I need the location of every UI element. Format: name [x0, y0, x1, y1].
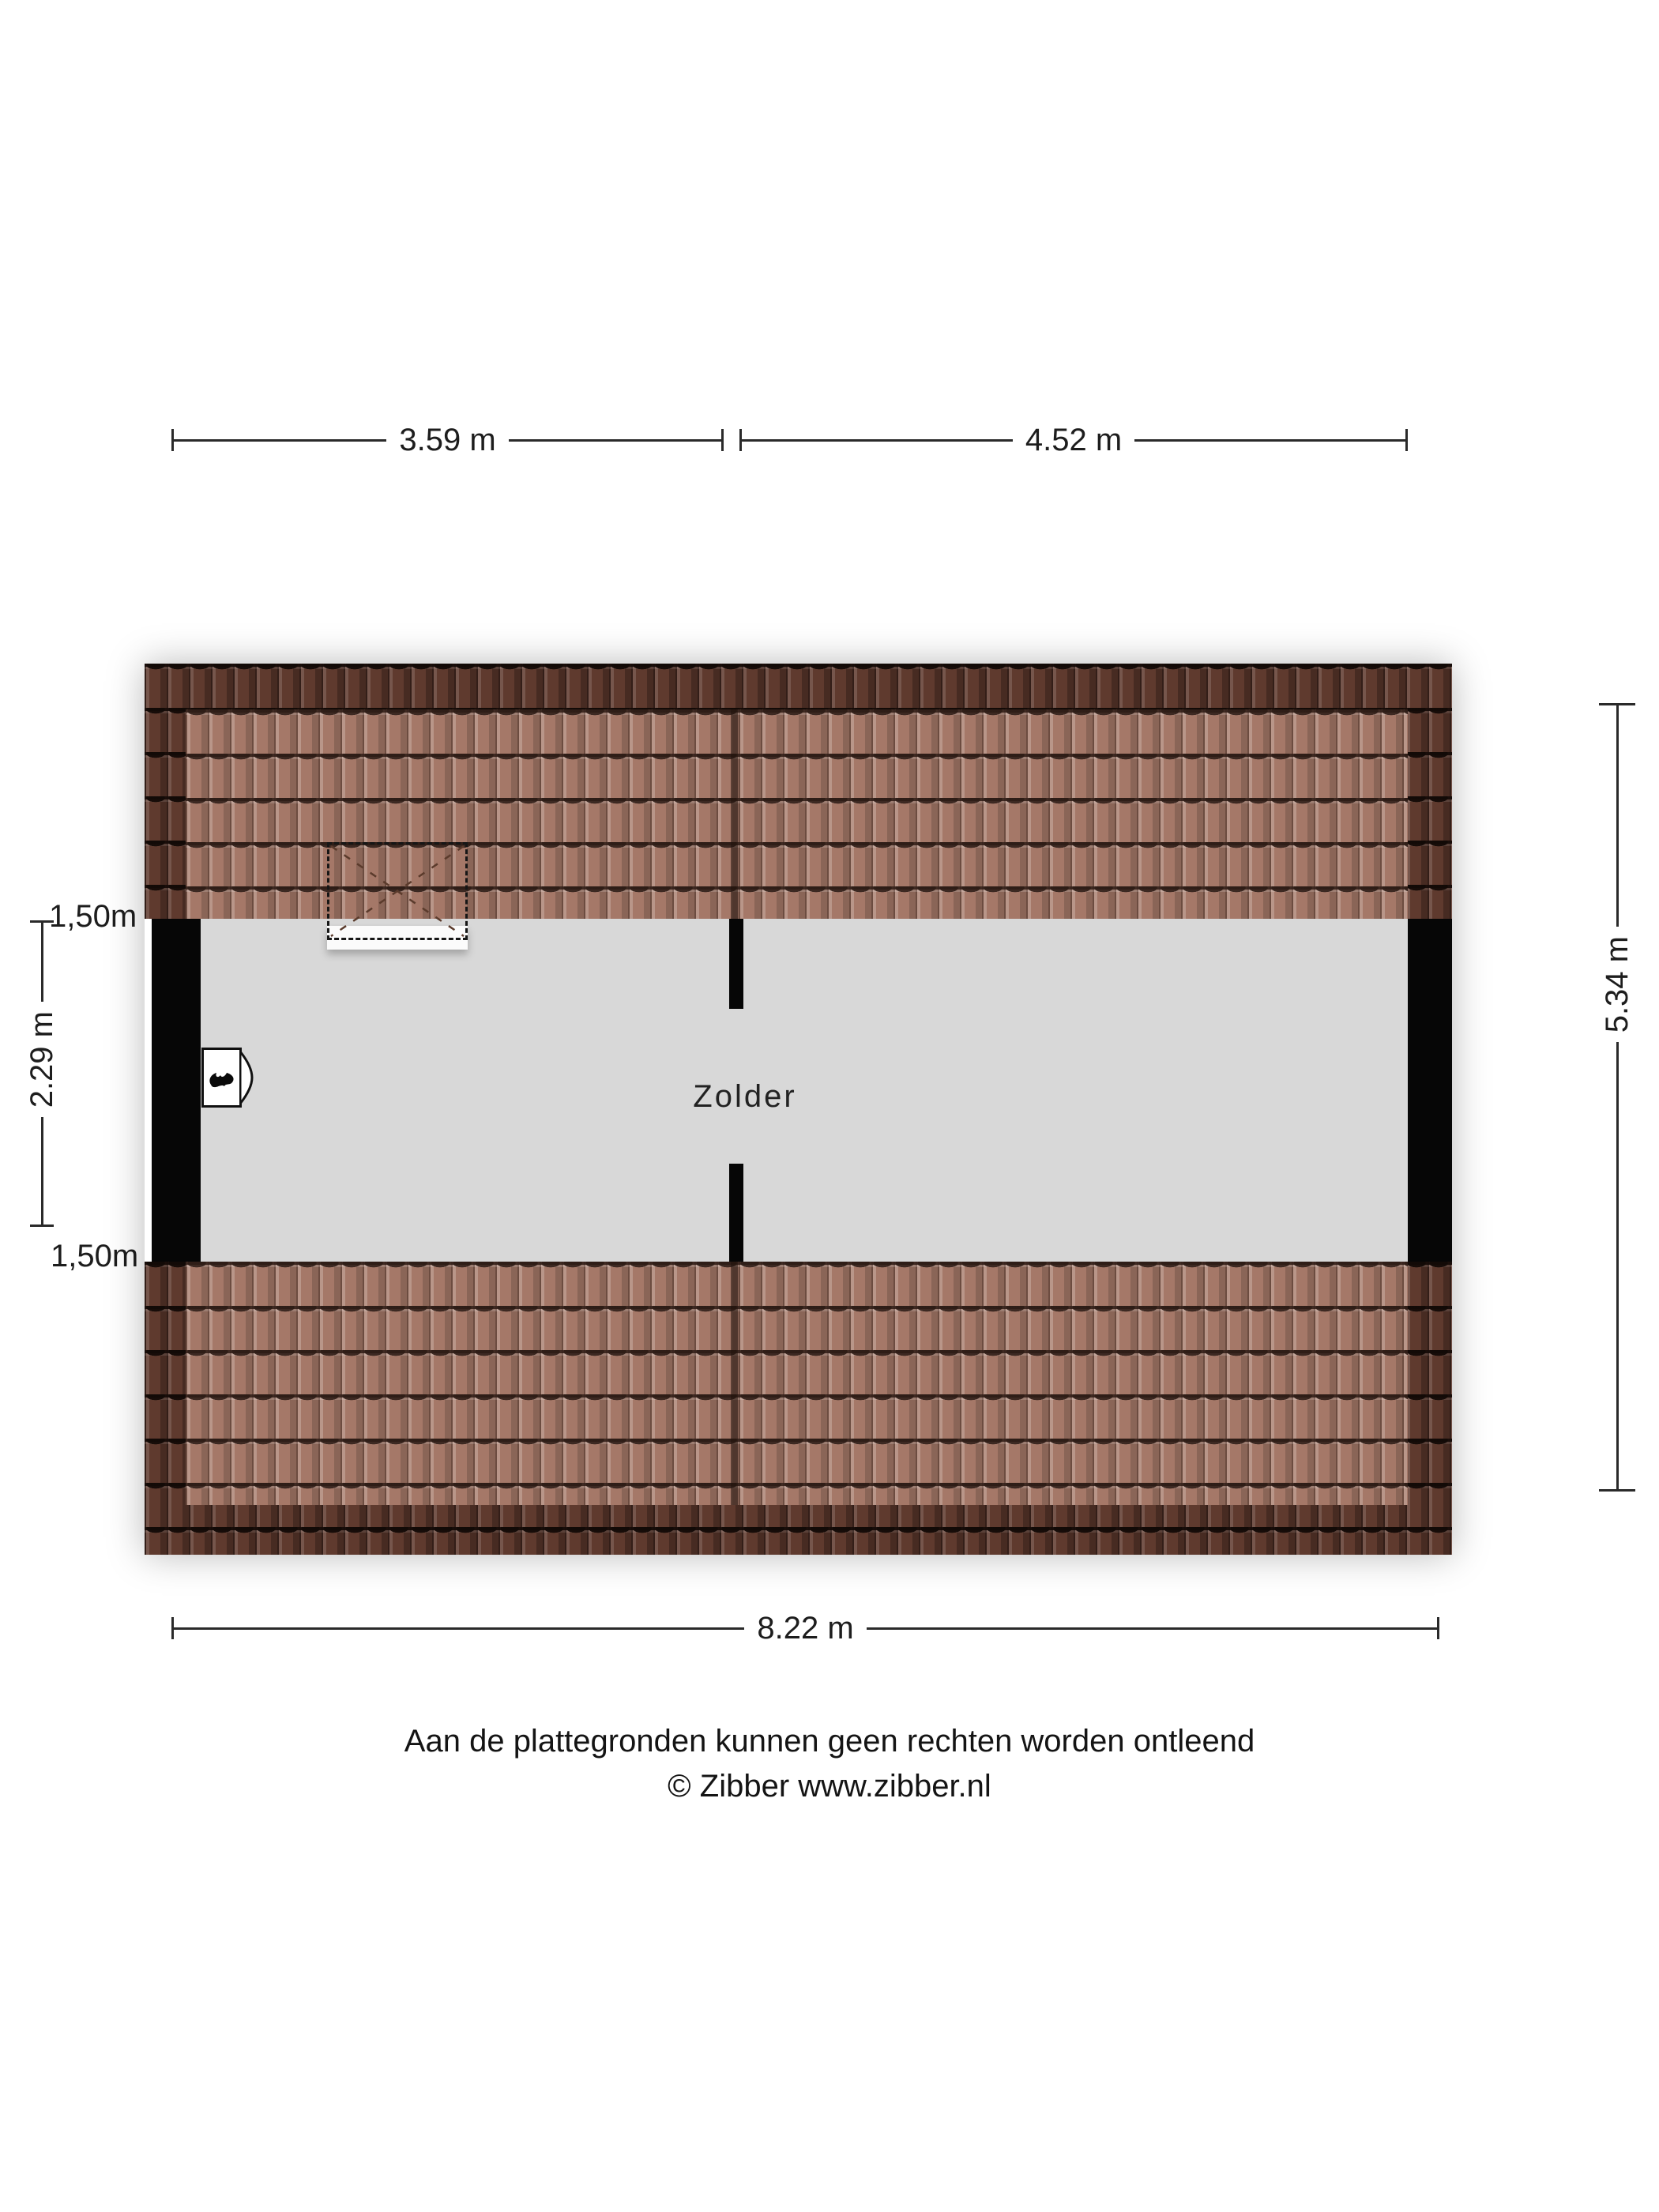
dimension-label: 8.22 m — [744, 1611, 866, 1646]
party-wall-seam-bottom — [731, 1262, 738, 1505]
dimension-tick — [721, 429, 724, 451]
left-bottom-height-label: 1,50m — [51, 1239, 138, 1274]
wall-right — [1408, 919, 1452, 1262]
dimension-tick — [30, 1224, 54, 1227]
room-label: Zolder — [646, 1079, 844, 1115]
dimension-label: 2.29 m — [24, 1002, 60, 1117]
boiler-unit — [201, 1048, 242, 1108]
dimension-tick — [1599, 1489, 1635, 1492]
dimension-label: 4.52 m — [1013, 423, 1134, 458]
dimension-top-left: 3.59 m — [171, 422, 724, 458]
disclaimer-text: Aan de plattegronden kunnen geen rechten… — [0, 1719, 1659, 1764]
wall-stub-bottom — [729, 1164, 743, 1262]
party-wall-seam-top — [731, 709, 738, 919]
boiler-door-arc — [239, 1048, 254, 1108]
dimension-line — [174, 439, 386, 442]
dimension-line — [41, 923, 43, 1002]
dimension-line — [867, 1627, 1437, 1630]
wall-left — [152, 919, 201, 1262]
dimension-line — [509, 439, 721, 442]
left-top-height-label: 1,50m — [49, 899, 137, 935]
dimension-line — [1616, 705, 1619, 927]
dimension-top-right: 4.52 m — [739, 422, 1408, 458]
dimension-left: 2.29 m — [24, 920, 59, 1227]
dimension-right: 5.34 m — [1599, 703, 1635, 1492]
dimension-line — [41, 1117, 43, 1224]
copyright-text: © Zibber www.zibber.nl — [0, 1764, 1659, 1809]
roof-bottom — [145, 1262, 1452, 1555]
dimension-bottom: 8.22 m — [171, 1610, 1439, 1646]
dimension-line — [1134, 439, 1405, 442]
dimension-tick — [1437, 1617, 1439, 1639]
dimension-tick — [1405, 429, 1408, 451]
dimension-label: 5.34 m — [1600, 927, 1635, 1042]
dimension-label: 3.59 m — [386, 423, 508, 458]
footer-disclaimer: Aan de plattegronden kunnen geen rechten… — [0, 1719, 1659, 1809]
dimension-line — [742, 439, 1013, 442]
skylight-cross-icon — [329, 845, 465, 938]
floorplan-page: 3.59 m 4.52 m 1,50m 2.29 m 1,50m 5.34 m — [0, 0, 1659, 2212]
dimension-line — [174, 1627, 744, 1630]
flame-icon — [207, 1067, 239, 1091]
wall-stub-top — [729, 919, 743, 1009]
dimension-line — [1616, 1042, 1619, 1489]
roof-bottom-inner-plane — [186, 1262, 1408, 1505]
skylight-icon — [327, 842, 468, 940]
